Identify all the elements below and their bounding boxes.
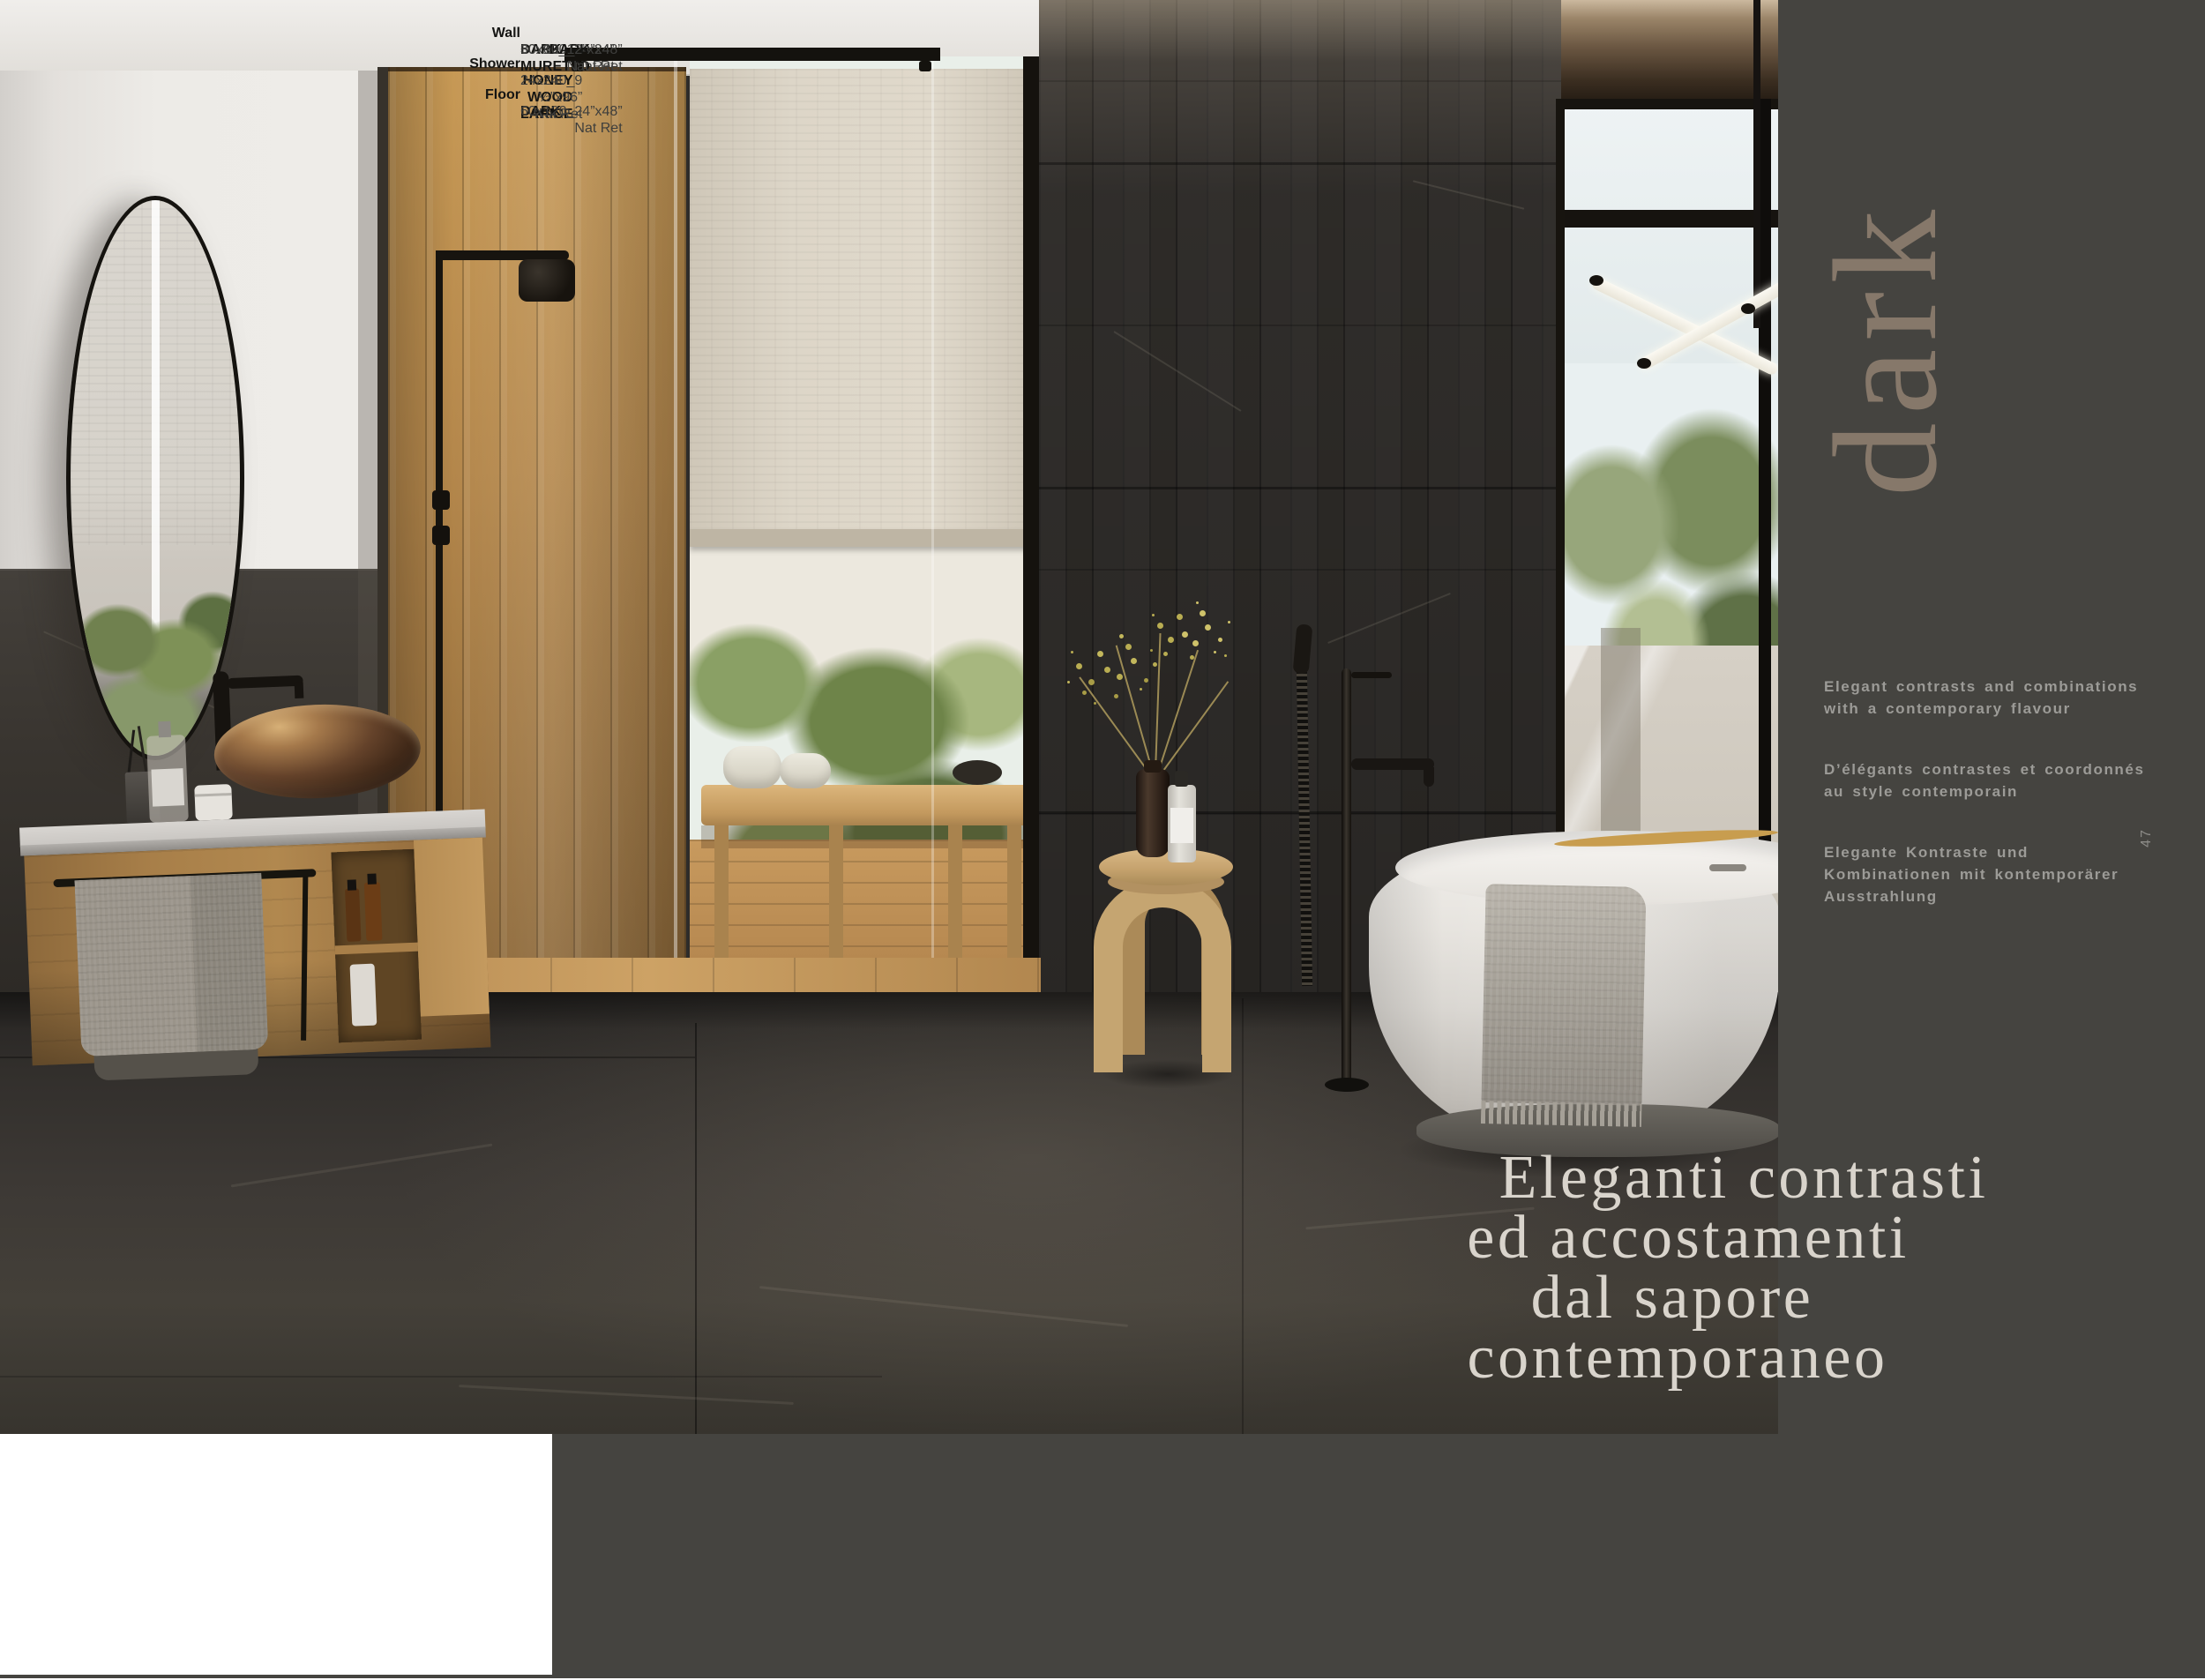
description-de: Elegante Kontraste und Kombinationen mit… [1824,841,2150,907]
catalog-page: dark Elegant contrasts and combinations … [0,0,2205,1680]
bud-vase [1136,769,1170,857]
glass-bottle-label [151,768,184,806]
shower-knob [432,490,450,510]
bathtub-towel [1481,884,1646,1106]
spec-group-shower: Shower HONEY WOOD LARICE24x240_9 ½”x96” … [0,56,520,72]
freestanding-faucet [1342,668,1351,1083]
amber-bottle [345,888,361,942]
window-with-blind [690,56,1030,995]
shower-knob [432,526,450,545]
white-bottle [350,964,377,1027]
amber-bottle [364,882,383,941]
floor-grout-line [0,1376,882,1378]
wooden-stool [1099,848,1233,885]
basin-faucet-tip [295,683,304,698]
bottle-cap [348,879,356,890]
quote-line: dal sapore [1337,1268,2007,1328]
ceiling-dark [1561,0,1778,104]
pendant-rod [1753,0,1760,328]
faucet-spout [1351,758,1434,770]
faucet-spout-tip [1424,767,1434,787]
stool-leg-arch [1094,878,1231,1072]
window-frame [1556,99,1778,109]
spec-group-floor: Floor DARK60x120_24”x48” Nat Ret [0,86,520,103]
basin-faucet-spout [227,676,303,689]
dried-flowers [1104,667,1110,673]
product-detail: 30x60_12”x24” Nat Ret [520,41,615,75]
soap-pump [1175,771,1188,787]
spec-heading: Wall [0,25,520,41]
outdoor-bench [701,785,1030,825]
headline-quote: Eleganti contrasti ed accostamenti dal s… [1385,1148,2055,1388]
bench-bowl [953,760,1002,785]
pendant-cap [1637,358,1651,369]
shower-head [519,259,575,302]
vanity-end-panel [414,838,490,1017]
wall-hung-vanity [13,661,496,1073]
glass-edge [674,61,677,966]
spec-heading: Floor [0,86,520,103]
cream-jar [194,784,233,821]
quote-line: Eleganti contrasti [1409,1148,2079,1208]
spec-heading: Shower [0,56,520,72]
pendant-joint [1741,303,1755,314]
bottom-rule [0,1675,552,1678]
rolled-towel [780,753,831,788]
description-fr: D’élégants contrastes et coordonnés au s… [1824,758,2150,803]
dried-flowers [1182,631,1188,638]
roller-blind [690,69,1030,545]
collection-title: dark [1811,190,1961,508]
collection-title-text: dark [1812,202,1960,497]
bud-vase-neck [1144,760,1162,773]
roller-blind-bar [690,529,1030,547]
window-frame [1023,56,1039,995]
product-detail: 60x120_24”x48” Nat Ret [520,103,623,137]
product-specs: Wall DARK60x120_24”x48” Nat Ret DARK MUR… [0,0,552,241]
quote-line: contemporaneo [1342,1328,2013,1388]
glass-bottle-pump [158,721,171,738]
hanging-towel [74,873,268,1057]
rolled-towel [723,746,781,788]
spec-panel [0,1434,552,1675]
pendant-cap [1589,275,1603,286]
faucet-base [1325,1078,1369,1092]
spec-group-wall: Wall DARK60x120_24”x48” Nat Ret DARK MUR… [0,25,520,41]
bronze-vessel-sink [213,700,422,802]
soap-label [1170,808,1193,843]
bathtub-overflow [1709,864,1746,871]
bottle-cap [367,873,376,884]
glass-hinge [919,61,931,71]
faucet-lever [1351,672,1392,678]
description-en: Elegant contrasts and combinations with … [1824,676,2150,720]
window-mullion [1556,210,1778,228]
glass-edge [931,61,934,966]
bench-shadow [701,825,1030,848]
bottom-band [552,1434,2205,1678]
page-number: 47 [2126,811,2168,864]
floor-grout-line [695,1023,697,1434]
description-block: Elegant contrasts and combinations with … [1824,676,2150,946]
quote-line: ed accostamenti [1353,1208,2023,1268]
